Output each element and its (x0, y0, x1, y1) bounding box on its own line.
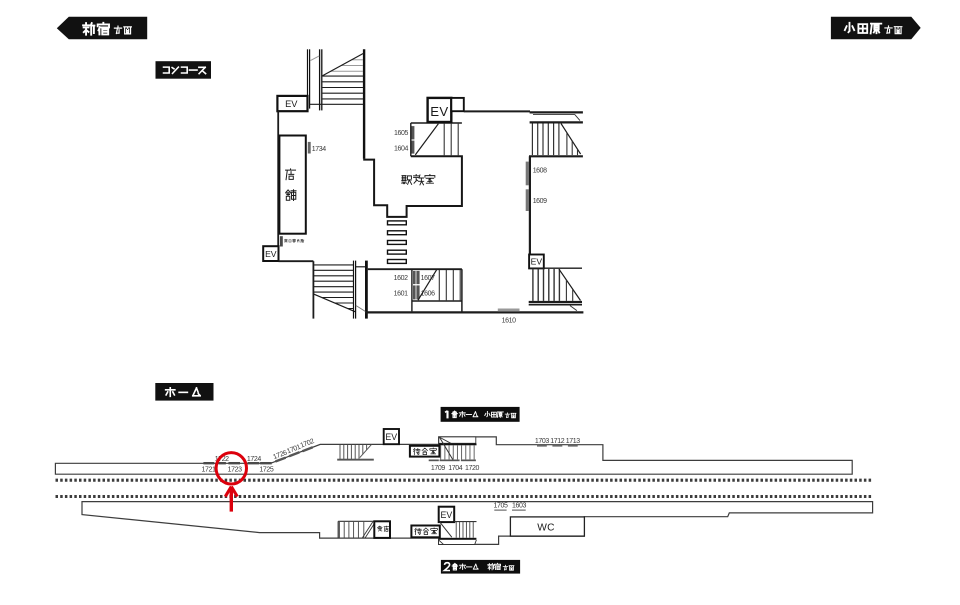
svg-text:1712: 1712 (550, 438, 564, 445)
svg-text:1602: 1602 (394, 275, 408, 282)
svg-text:1713: 1713 (566, 438, 580, 445)
svg-text:EV: EV (265, 249, 277, 259)
svg-text:1734: 1734 (312, 146, 326, 153)
svg-text:1723: 1723 (228, 467, 242, 474)
svg-text:1721: 1721 (202, 467, 216, 474)
svg-text:1604: 1604 (394, 146, 408, 153)
svg-text:EV: EV (531, 257, 543, 267)
svg-text:1703: 1703 (535, 438, 549, 445)
svg-text:EV: EV (385, 432, 397, 442)
svg-text:1709: 1709 (431, 465, 445, 472)
svg-text:1705: 1705 (494, 502, 508, 509)
svg-text:EV: EV (441, 510, 453, 520)
svg-text:1724: 1724 (247, 456, 261, 463)
svg-text:1603: 1603 (512, 502, 526, 509)
svg-text:1610: 1610 (502, 317, 516, 324)
svg-text:1704: 1704 (448, 465, 462, 472)
svg-text:EV: EV (430, 104, 448, 119)
svg-text:1601: 1601 (394, 290, 408, 297)
svg-text:1609: 1609 (533, 198, 547, 205)
svg-text:1605: 1605 (394, 130, 408, 137)
svg-text:1725: 1725 (259, 467, 273, 474)
svg-text:1720: 1720 (465, 465, 479, 472)
svg-text:1608: 1608 (533, 167, 547, 174)
svg-text:WC: WC (537, 523, 555, 534)
svg-text:EV: EV (285, 99, 298, 109)
